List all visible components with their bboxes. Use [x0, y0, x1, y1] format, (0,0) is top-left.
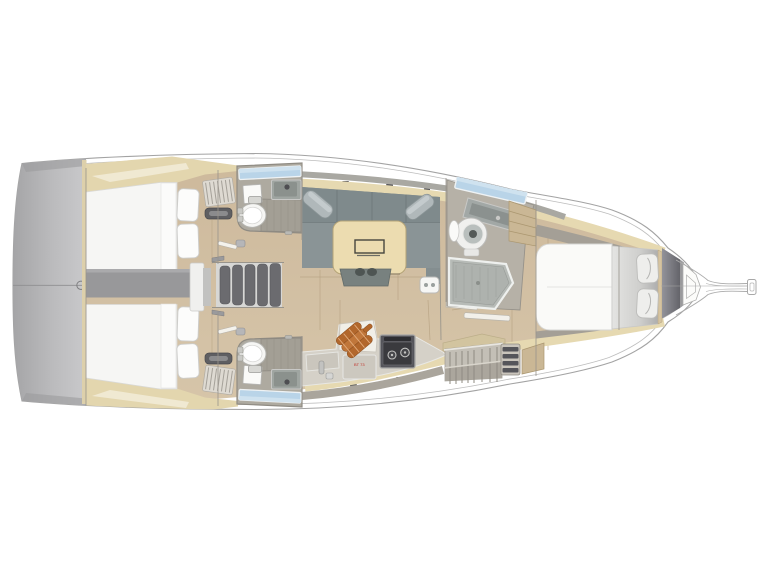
svg-text:BT 73: BT 73	[354, 362, 365, 367]
